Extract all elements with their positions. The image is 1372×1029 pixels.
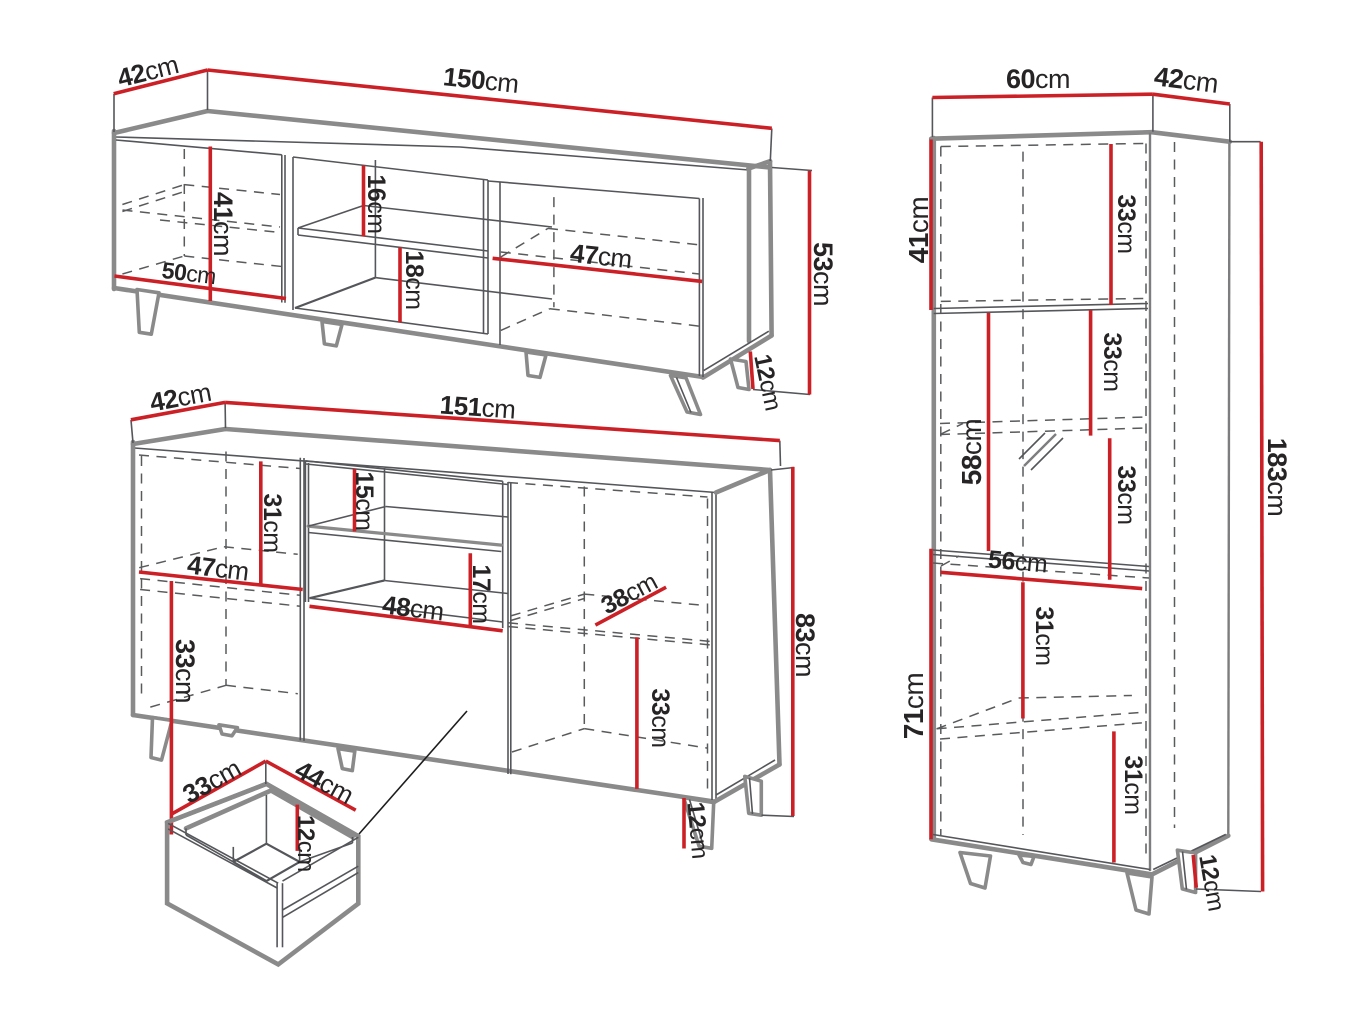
- svg-text:17cm: 17cm: [467, 564, 495, 623]
- svg-text:183cm: 183cm: [1262, 438, 1292, 517]
- svg-text:18cm: 18cm: [400, 250, 428, 309]
- svg-text:151cm: 151cm: [439, 389, 516, 424]
- svg-text:71cm: 71cm: [898, 673, 929, 739]
- svg-text:83cm: 83cm: [790, 613, 820, 677]
- svg-text:31cm: 31cm: [1030, 606, 1058, 665]
- svg-text:15cm: 15cm: [350, 471, 378, 530]
- svg-text:33cm: 33cm: [646, 688, 674, 747]
- svg-text:31cm: 31cm: [258, 493, 286, 552]
- svg-text:33cm: 33cm: [1112, 465, 1140, 524]
- svg-text:12cm: 12cm: [292, 815, 319, 872]
- svg-text:31cm: 31cm: [1119, 755, 1147, 814]
- svg-text:41cm: 41cm: [208, 192, 238, 256]
- svg-text:58cm: 58cm: [956, 419, 987, 485]
- svg-text:12cm: 12cm: [682, 801, 714, 860]
- svg-text:16cm: 16cm: [362, 174, 390, 233]
- svg-text:33cm: 33cm: [1098, 332, 1126, 391]
- svg-text:60cm: 60cm: [1006, 64, 1070, 94]
- svg-text:33cm: 33cm: [170, 639, 200, 703]
- svg-text:41cm: 41cm: [903, 197, 934, 263]
- svg-text:53cm: 53cm: [808, 242, 838, 306]
- svg-text:56cm: 56cm: [987, 546, 1048, 579]
- svg-text:33cm: 33cm: [1112, 194, 1140, 253]
